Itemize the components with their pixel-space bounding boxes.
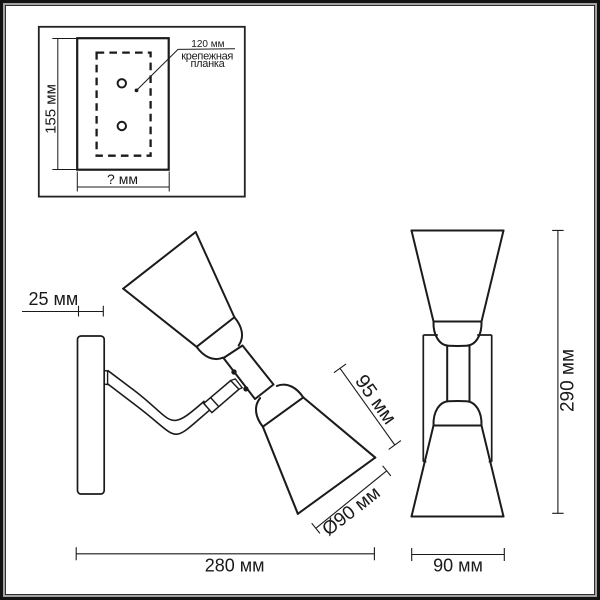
svg-text:290 мм: 290 мм [558, 349, 579, 412]
svg-text:280 мм: 280 мм [205, 555, 265, 575]
svg-text:? мм: ? мм [107, 171, 138, 187]
svg-text:25 мм: 25 мм [29, 289, 79, 309]
svg-text:155 мм: 155 мм [43, 84, 60, 134]
svg-text:90 мм: 90 мм [433, 555, 483, 575]
svg-text:120 мм: 120 мм [191, 39, 224, 50]
svg-text:планка: планка [191, 58, 226, 70]
